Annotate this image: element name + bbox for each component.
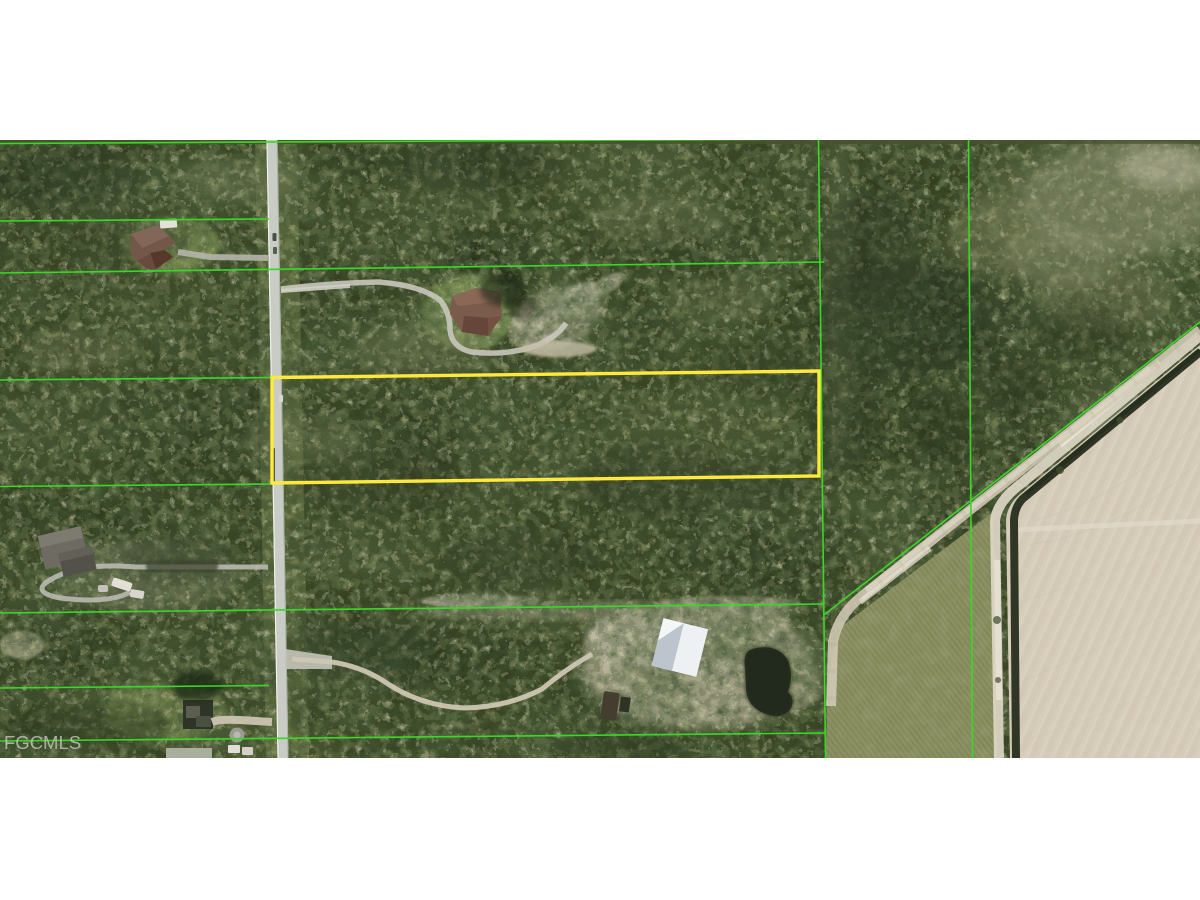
svg-text:FGCMLS: FGCMLS <box>4 732 81 753</box>
